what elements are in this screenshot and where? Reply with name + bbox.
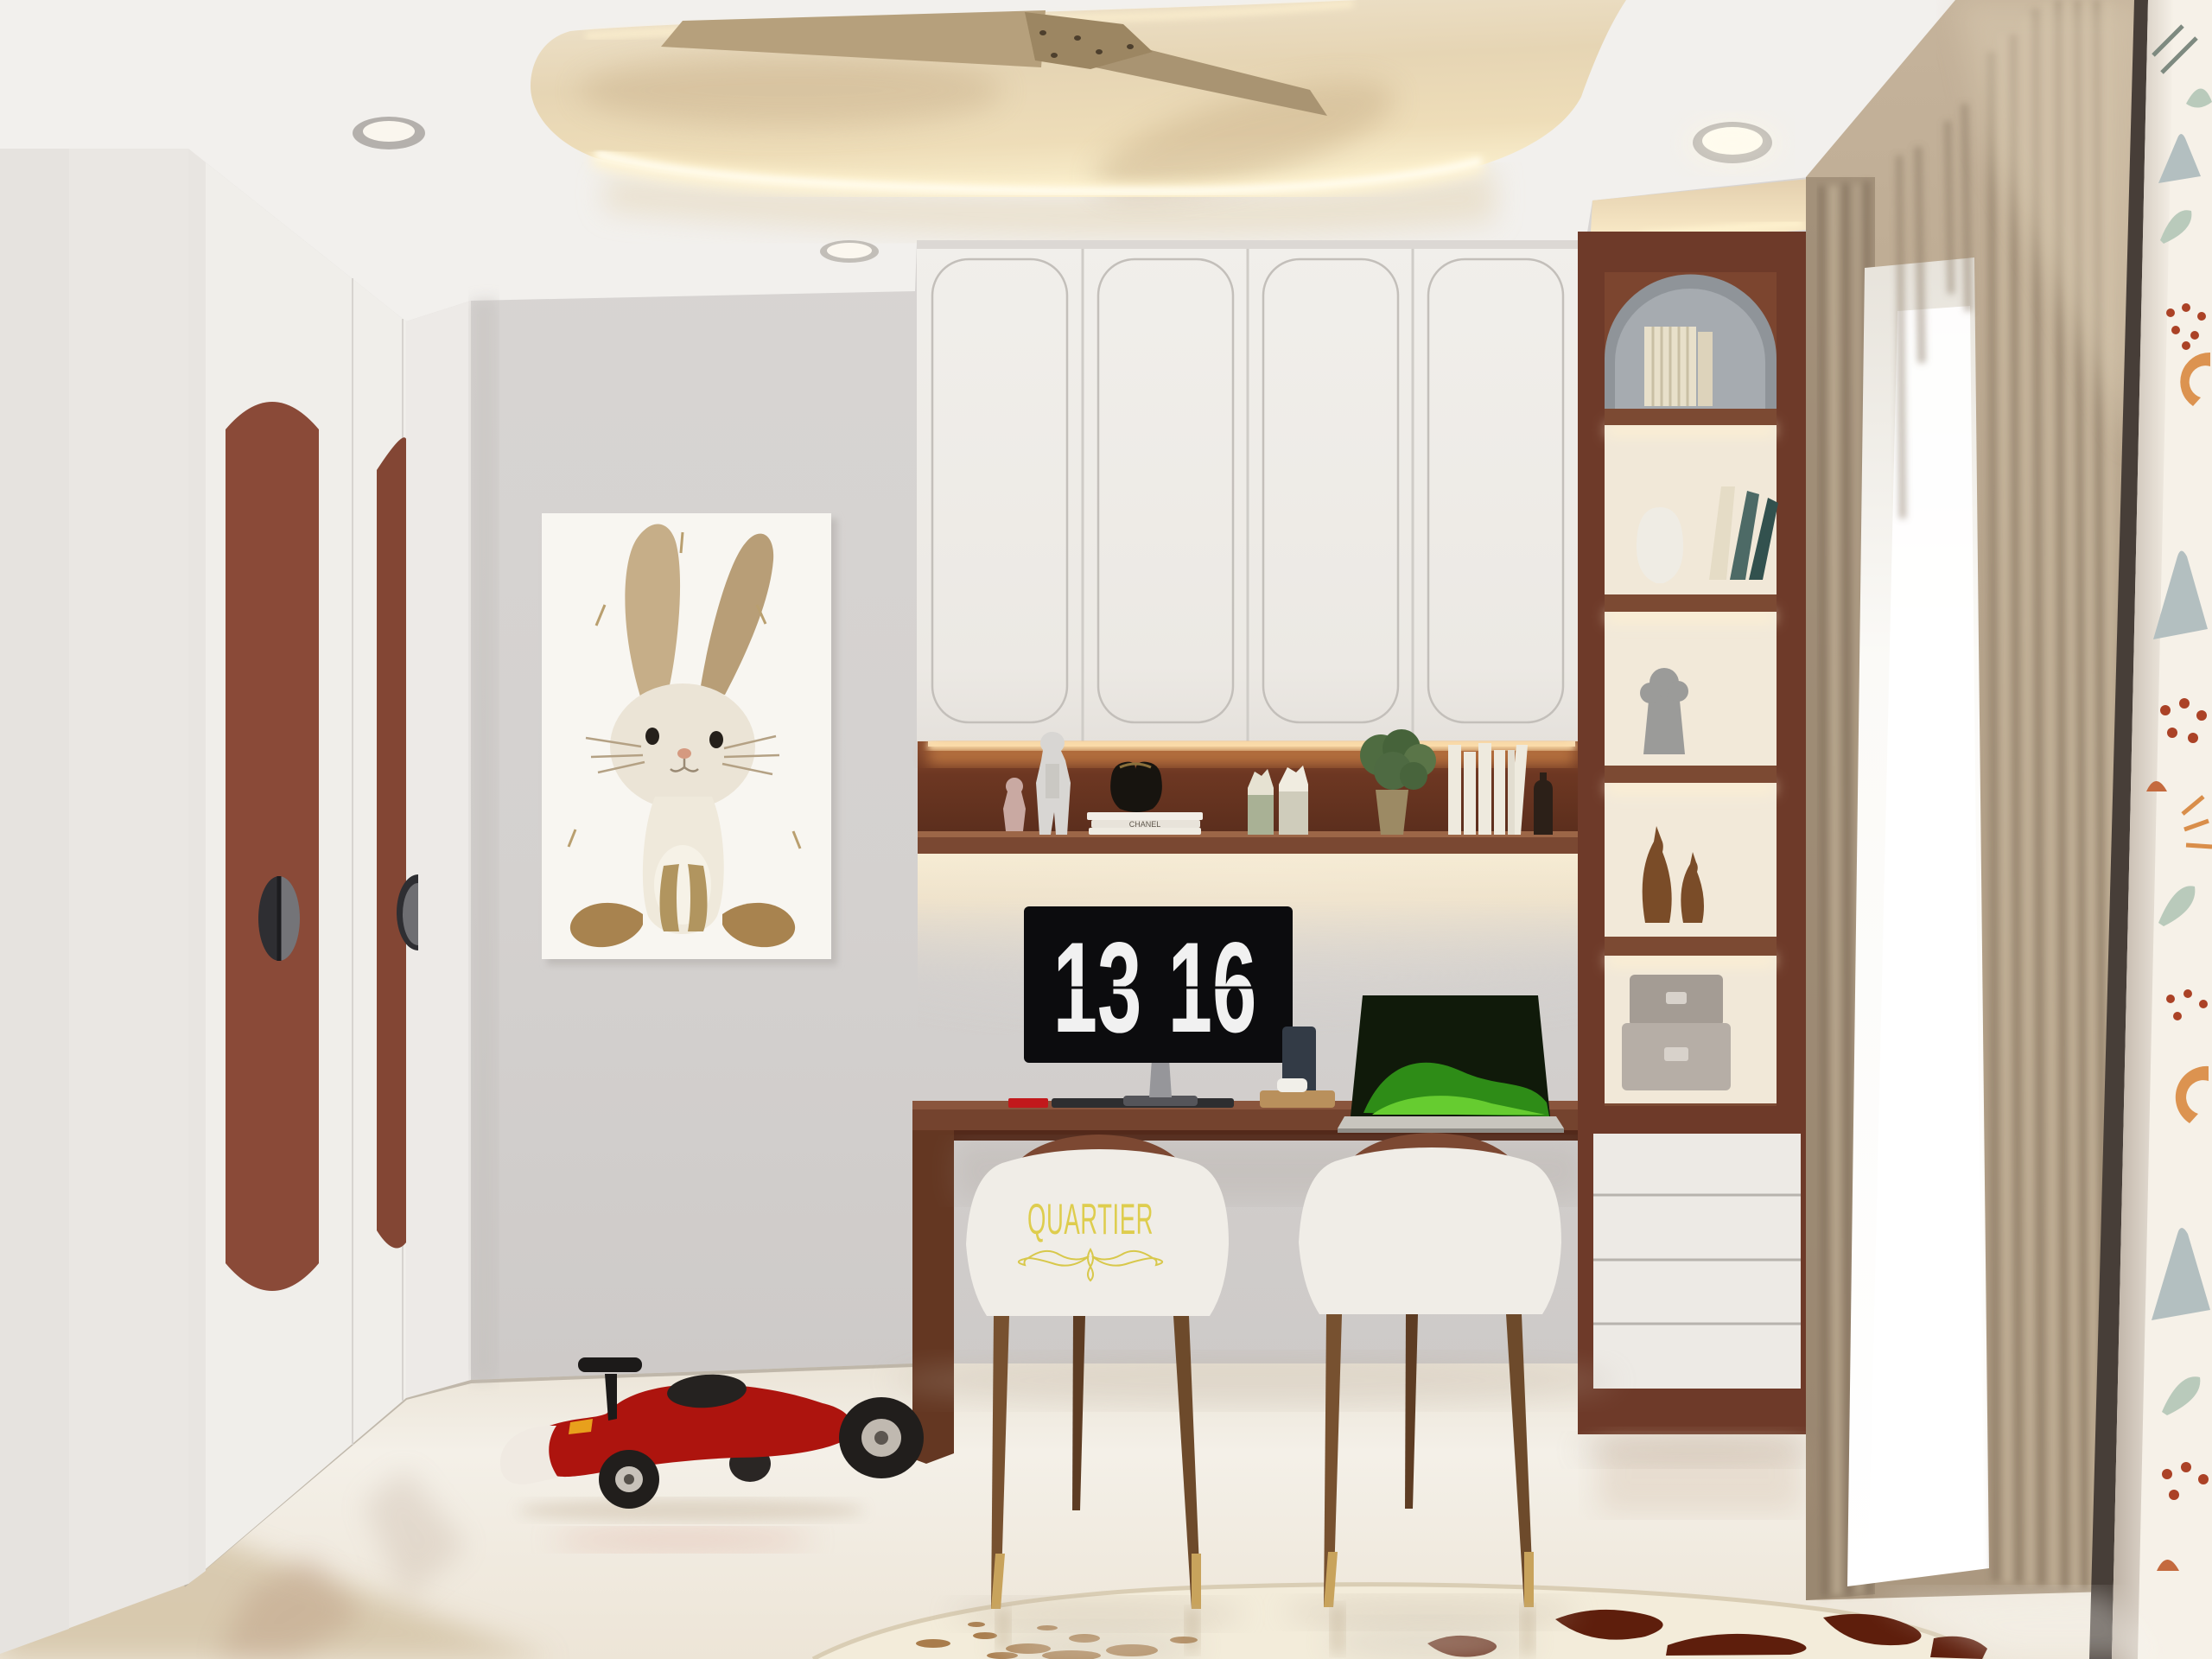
svg-text:QUARTIER: QUARTIER (1027, 1194, 1154, 1243)
svg-text:CHANEL: CHANEL (1129, 820, 1161, 829)
